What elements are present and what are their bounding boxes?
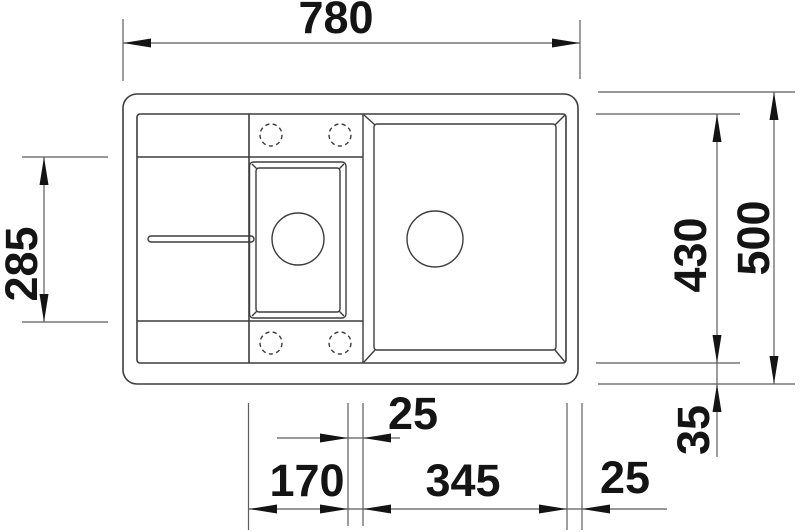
- label-inner-depth: 430: [665, 217, 716, 292]
- label-small-bowl-width: 170: [269, 455, 344, 506]
- label-right-rim: 25: [600, 452, 650, 503]
- label-left-section-depth: 285: [0, 226, 47, 301]
- label-main-bowl-width: 345: [425, 455, 500, 506]
- label-bottom-rim: 35: [668, 405, 719, 455]
- label-overall-depth: 500: [728, 200, 779, 275]
- label-bowl-gap: 25: [388, 388, 438, 439]
- sink-dimension-drawing: 780 285 430 500 35 25 170 345 25: [0, 0, 800, 532]
- label-overall-width: 780: [298, 0, 373, 43]
